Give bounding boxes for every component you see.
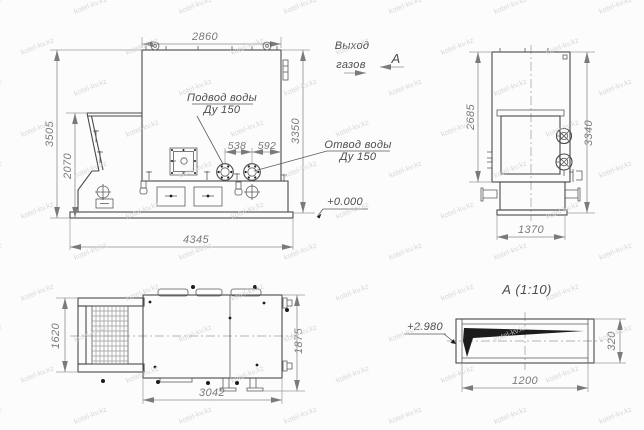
watermark-text: kotel-kv.kz (19, 281, 55, 302)
watermark-text: kotel-kv.kz (439, 281, 475, 302)
flange-spacing-dimension: 538 (228, 140, 246, 152)
watermark-text: kotel-kv.kz (387, 0, 423, 16)
watermark-text: kotel-kv.kz (0, 404, 3, 425)
watermark-text: kotel-kv.kz (282, 404, 318, 425)
watermark-text: kotel-kv.kz (439, 199, 475, 220)
watermark-text: kotel-kv.kz (387, 322, 423, 343)
water-return-line1: Отвод воды (324, 139, 391, 151)
watermark-text: kotel-kv.kz (229, 117, 265, 138)
front-right-dimension: 3350 (290, 117, 302, 144)
watermark-text: kotel-kv.kz (387, 158, 423, 179)
watermark-text: kotel-kv.kz (19, 35, 55, 56)
gas-outlet-line2: газов (336, 59, 366, 71)
watermark-text: kotel-kv.kz (124, 281, 160, 302)
watermark-text: kotel-kv.kz (597, 0, 633, 16)
view-direction-arrow: А (380, 51, 404, 67)
water-inlet-flange-left (217, 164, 234, 181)
water-supply-leader (197, 116, 223, 164)
technical-drawing-canvas: 2860 (0, 0, 644, 430)
watermark-text: kotel-kv.kz (597, 76, 633, 97)
plan-view: 1620 1875 3042 (50, 285, 305, 404)
watermark-text: kotel-kv.kz (492, 240, 528, 261)
plan-bottom-dimension: 3042 (199, 387, 225, 399)
side-bottom-dimension: 1370 (518, 224, 545, 236)
watermark-text: kotel-kv.kz (597, 404, 633, 425)
watermark-text: kotel-kv.kz (72, 404, 108, 425)
watermark-text: kotel-kv.kz (439, 363, 475, 384)
watermark-text: kotel-kv.kz (0, 322, 3, 343)
watermark-text: kotel-kv.kz (0, 158, 3, 179)
watermark-text: kotel-kv.kz (492, 76, 528, 97)
watermark-text: kotel-kv.kz (492, 158, 528, 179)
watermark-text: kotel-kv.kz (492, 0, 528, 16)
watermark-text: kotel-kv.kz (597, 158, 633, 179)
watermark-text: kotel-kv.kz (387, 76, 423, 97)
watermark-text: kotel-kv.kz (72, 76, 108, 97)
watermark-text: kotel-kv.kz (229, 35, 265, 56)
watermark-text: kotel-kv.kz (282, 240, 318, 261)
section-a-view: А (1:10) +2.980 320 1200 (404, 282, 626, 392)
water-return-line2: Ду 150 (338, 151, 377, 163)
side-right-dimension: 3340 (583, 119, 595, 146)
watermark-text: kotel-kv.kz (334, 363, 370, 384)
watermark-text: kotel-kv.kz (544, 35, 580, 56)
watermark-text: kotel-kv.kz (229, 281, 265, 302)
watermark-text: kotel-kv.kz (124, 363, 160, 384)
watermark-text: kotel-kv.kz (492, 404, 528, 425)
plan-left-dimension: 1620 (50, 322, 62, 349)
watermark-text: kotel-kv.kz (544, 117, 580, 138)
watermark-text: kotel-kv.kz (334, 117, 370, 138)
water-supply-label-line1: Подвод воды (187, 92, 257, 104)
watermark-text: kotel-kv.kz (0, 0, 3, 16)
front-view: 2860 (44, 31, 368, 250)
front-top-dimension: 2860 (191, 31, 219, 43)
watermark-text: kotel-kv.kz (544, 363, 580, 384)
watermark-text: kotel-kv.kz (177, 322, 213, 343)
boiler-base-side (500, 182, 565, 210)
boiler-drawing-svg: 2860 (0, 0, 644, 430)
watermark-text: kotel-kv.kz (282, 0, 318, 16)
watermark-text: kotel-kv.kz (597, 240, 633, 261)
watermark-layer: kotel-kv.kzkotel-kv.kzkotel-kv.kzkotel-k… (0, 0, 644, 426)
watermark-text: kotel-kv.kz (177, 404, 213, 425)
watermark-text: kotel-kv.kz (72, 0, 108, 16)
front-left-inner-dimension: 2070 (62, 152, 74, 180)
side-view: 2685 3340 1370 (465, 45, 595, 240)
water-supply-label-line2: Ду 150 (202, 104, 241, 116)
watermark-text: kotel-kv.kz (334, 281, 370, 302)
flange-edge-dimension: 592 (258, 140, 276, 152)
watermark-text: kotel-kv.kz (0, 76, 3, 97)
view-arrow-label: А (390, 51, 400, 66)
watermark-text: kotel-kv.kz (387, 240, 423, 261)
watermark-text: kotel-kv.kz (544, 199, 580, 220)
watermark-text: kotel-kv.kz (177, 0, 213, 16)
watermark-text: kotel-kv.kz (229, 363, 265, 384)
watermark-text: kotel-kv.kz (0, 240, 3, 261)
water-inlet-flange-right (244, 164, 261, 181)
watermark-text: kotel-kv.kz (387, 404, 423, 425)
watermark-text: kotel-kv.kz (19, 363, 55, 384)
watermark-text: kotel-kv.kz (439, 35, 475, 56)
watermark-text: kotel-kv.kz (19, 199, 55, 220)
watermark-text: kotel-kv.kz (72, 240, 108, 261)
section-width-dimension: 1200 (512, 375, 539, 387)
